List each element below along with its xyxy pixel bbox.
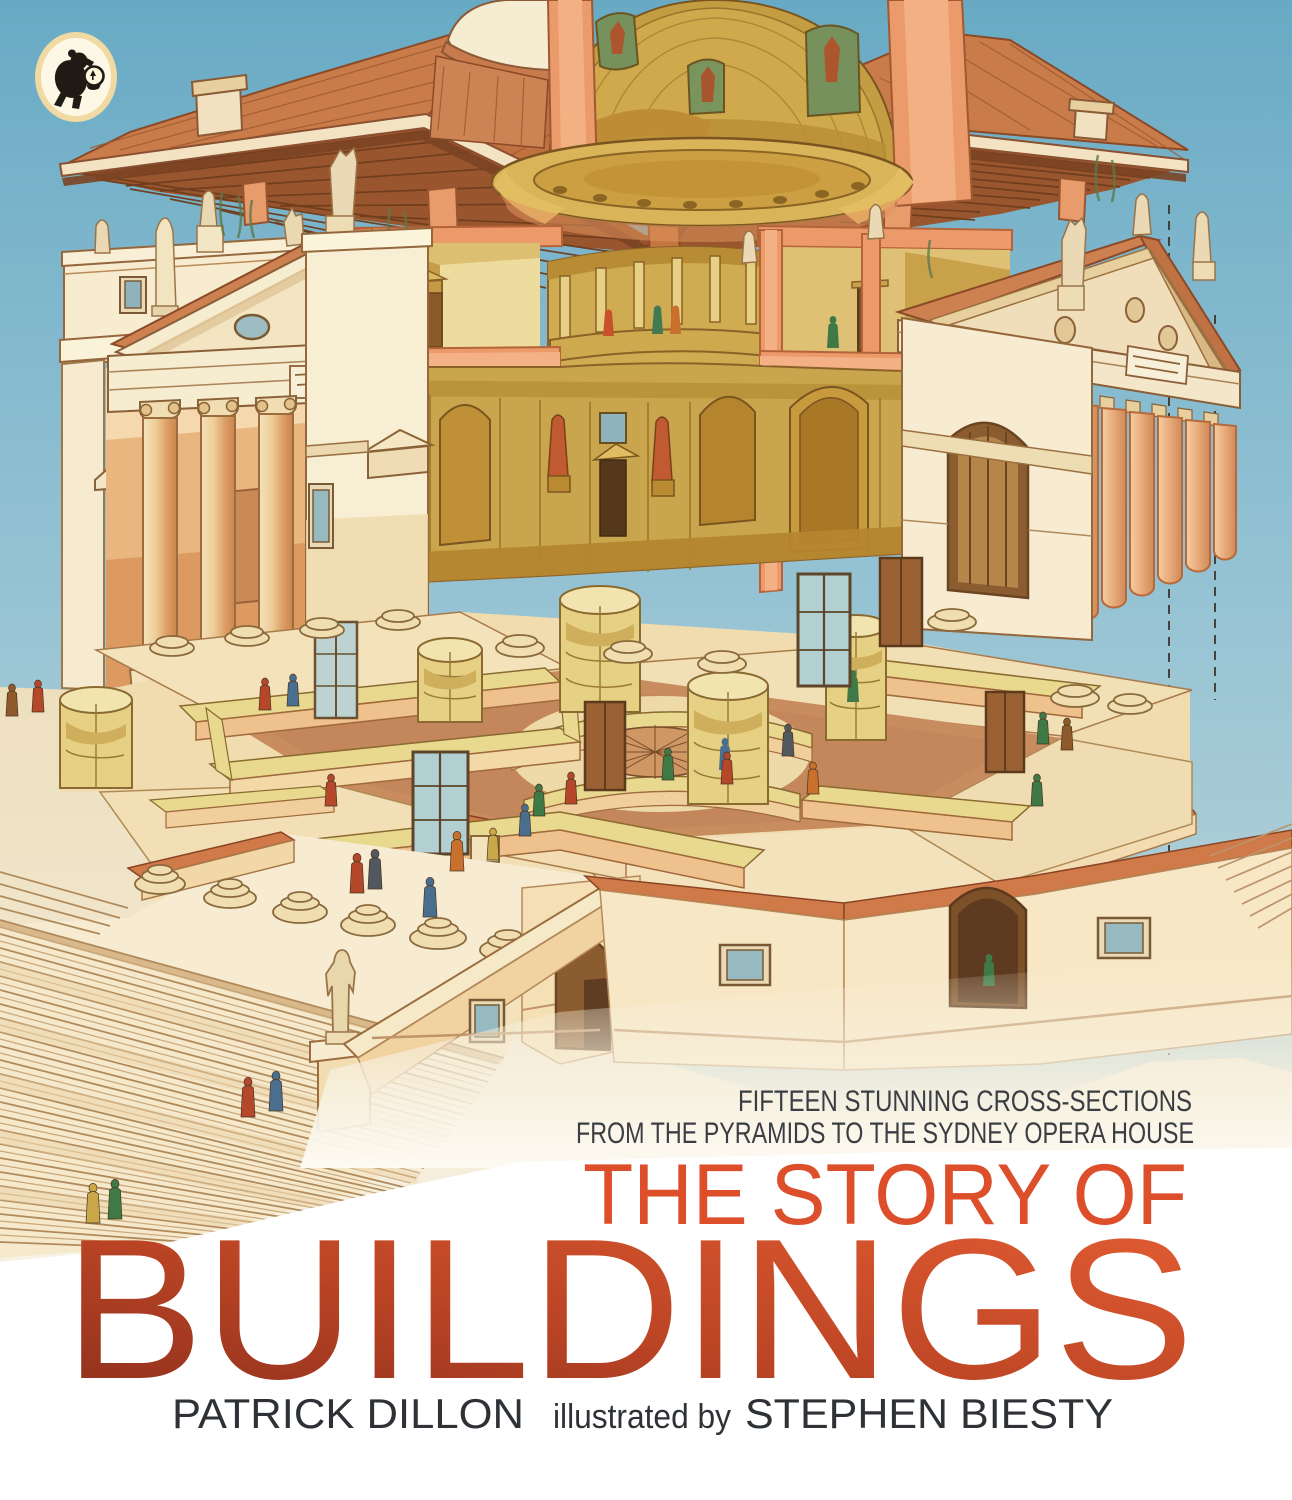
svg-text:STEPHEN BIESTY: STEPHEN BIESTY	[745, 1390, 1113, 1437]
svg-text:BUILDINGS: BUILDINGS	[64, 1198, 1194, 1421]
svg-text:FROM THE PYRAMIDS TO THE SYDNE: FROM THE PYRAMIDS TO THE SYDNEY OPERA HO…	[576, 1117, 1194, 1150]
svg-text:illustrated by: illustrated by	[553, 1398, 731, 1436]
svg-text:FIFTEEN STUNNING CROSS-SECTION: FIFTEEN STUNNING CROSS-SECTIONS	[738, 1085, 1192, 1118]
svg-text:PATRICK DILLON: PATRICK DILLON	[172, 1390, 524, 1437]
